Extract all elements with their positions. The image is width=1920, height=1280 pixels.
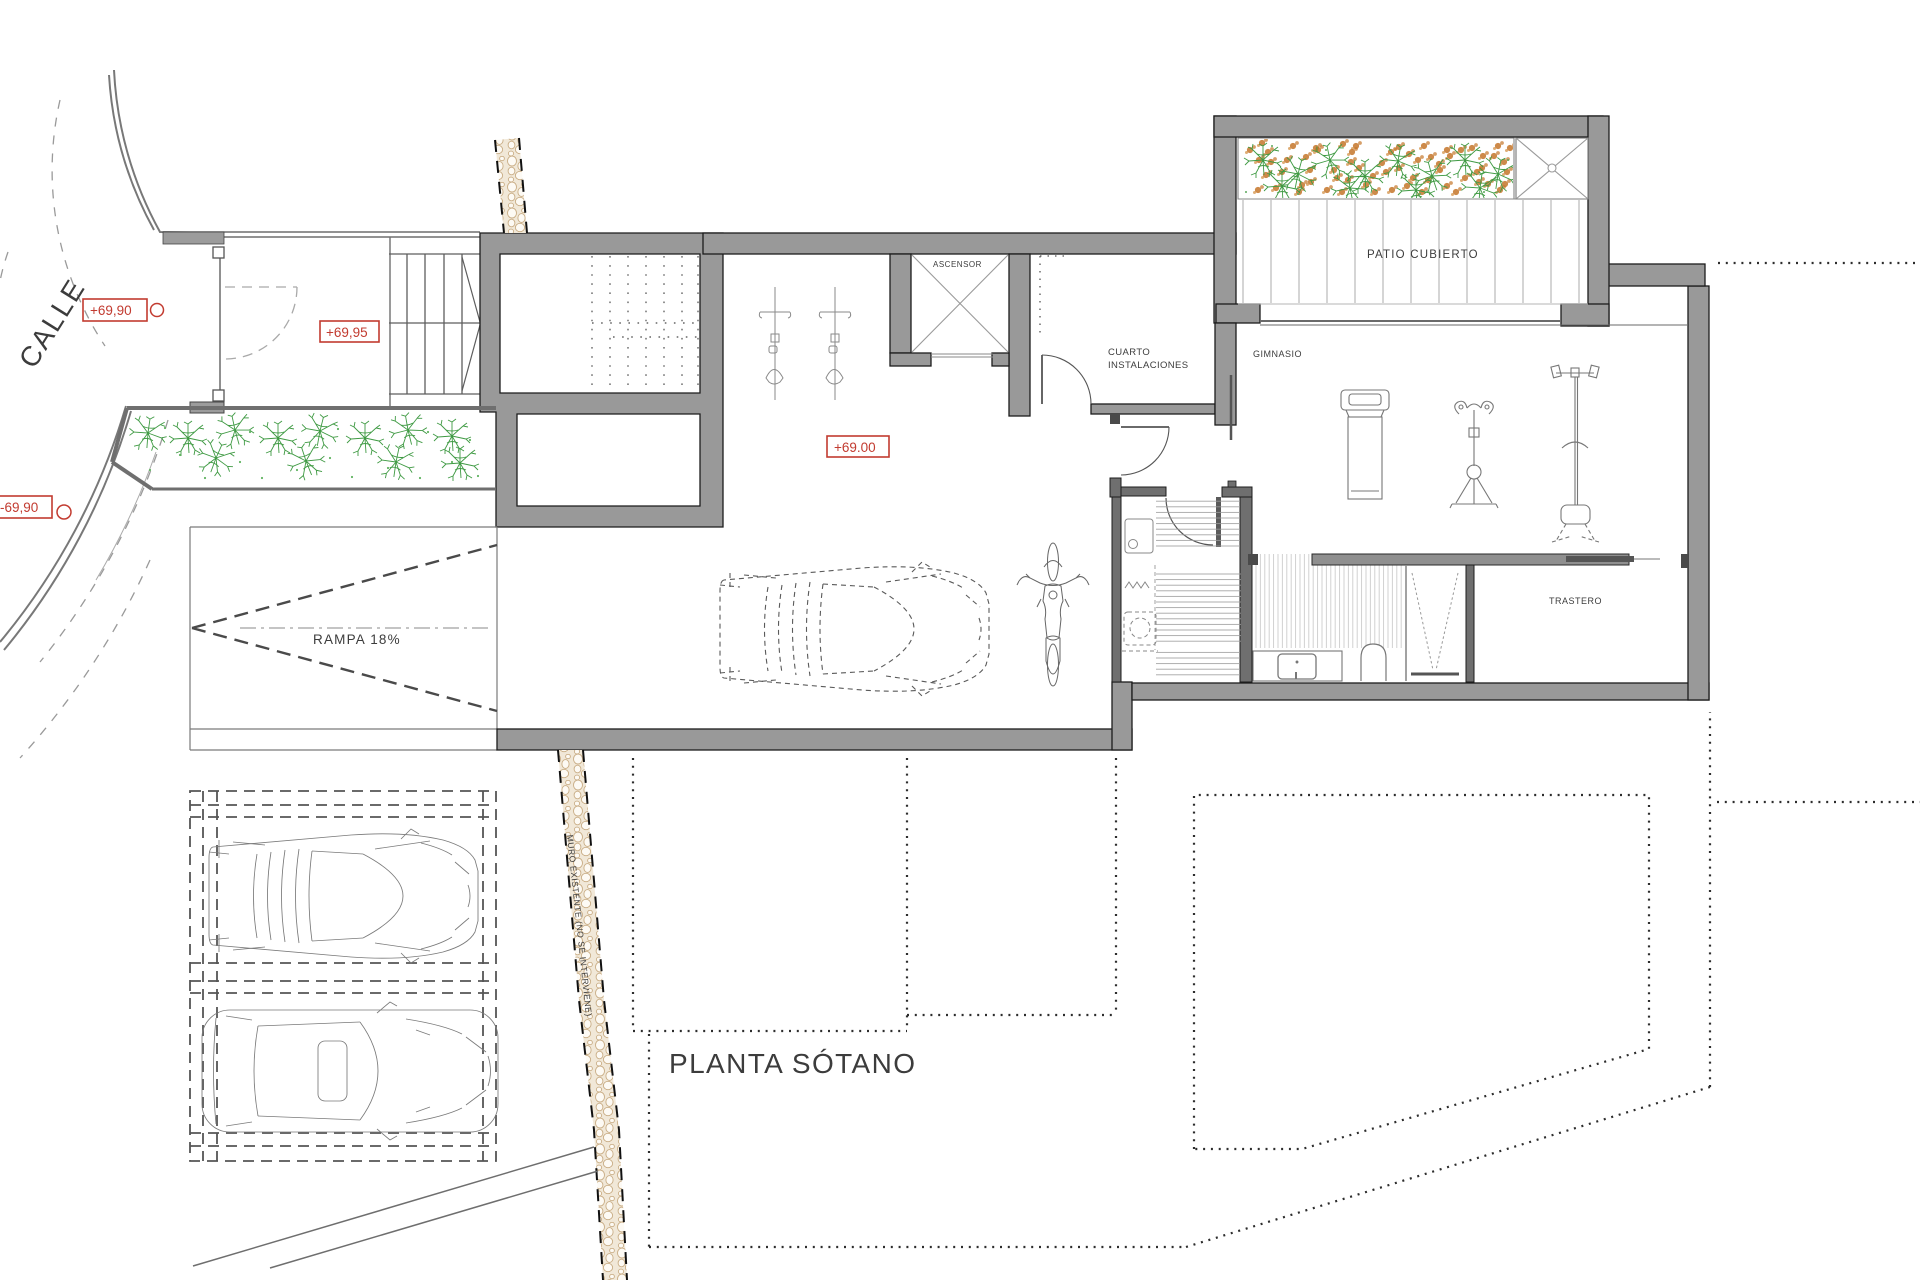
svg-text:+69,90: +69,90 bbox=[90, 303, 132, 318]
svg-text:ASCENSOR: ASCENSOR bbox=[933, 260, 982, 269]
svg-text:TRASTERO: TRASTERO bbox=[1549, 596, 1602, 606]
svg-text:+69,95: +69,95 bbox=[326, 325, 368, 340]
svg-text:+69.00: +69.00 bbox=[834, 440, 876, 455]
svg-text:-69,90: -69,90 bbox=[0, 500, 38, 515]
svg-text:CALLE: CALLE bbox=[13, 273, 92, 373]
svg-text:CUARTO: CUARTO bbox=[1108, 347, 1150, 358]
svg-text:GIMNASIO: GIMNASIO bbox=[1253, 349, 1302, 359]
svg-text:PATIO CUBIERTO: PATIO CUBIERTO bbox=[1367, 249, 1479, 261]
svg-text:RAMPA 18%: RAMPA 18% bbox=[313, 632, 401, 647]
svg-text:INSTALACIONES: INSTALACIONES bbox=[1108, 360, 1189, 371]
svg-text:PLANTA SÓTANO: PLANTA SÓTANO bbox=[669, 1048, 916, 1079]
